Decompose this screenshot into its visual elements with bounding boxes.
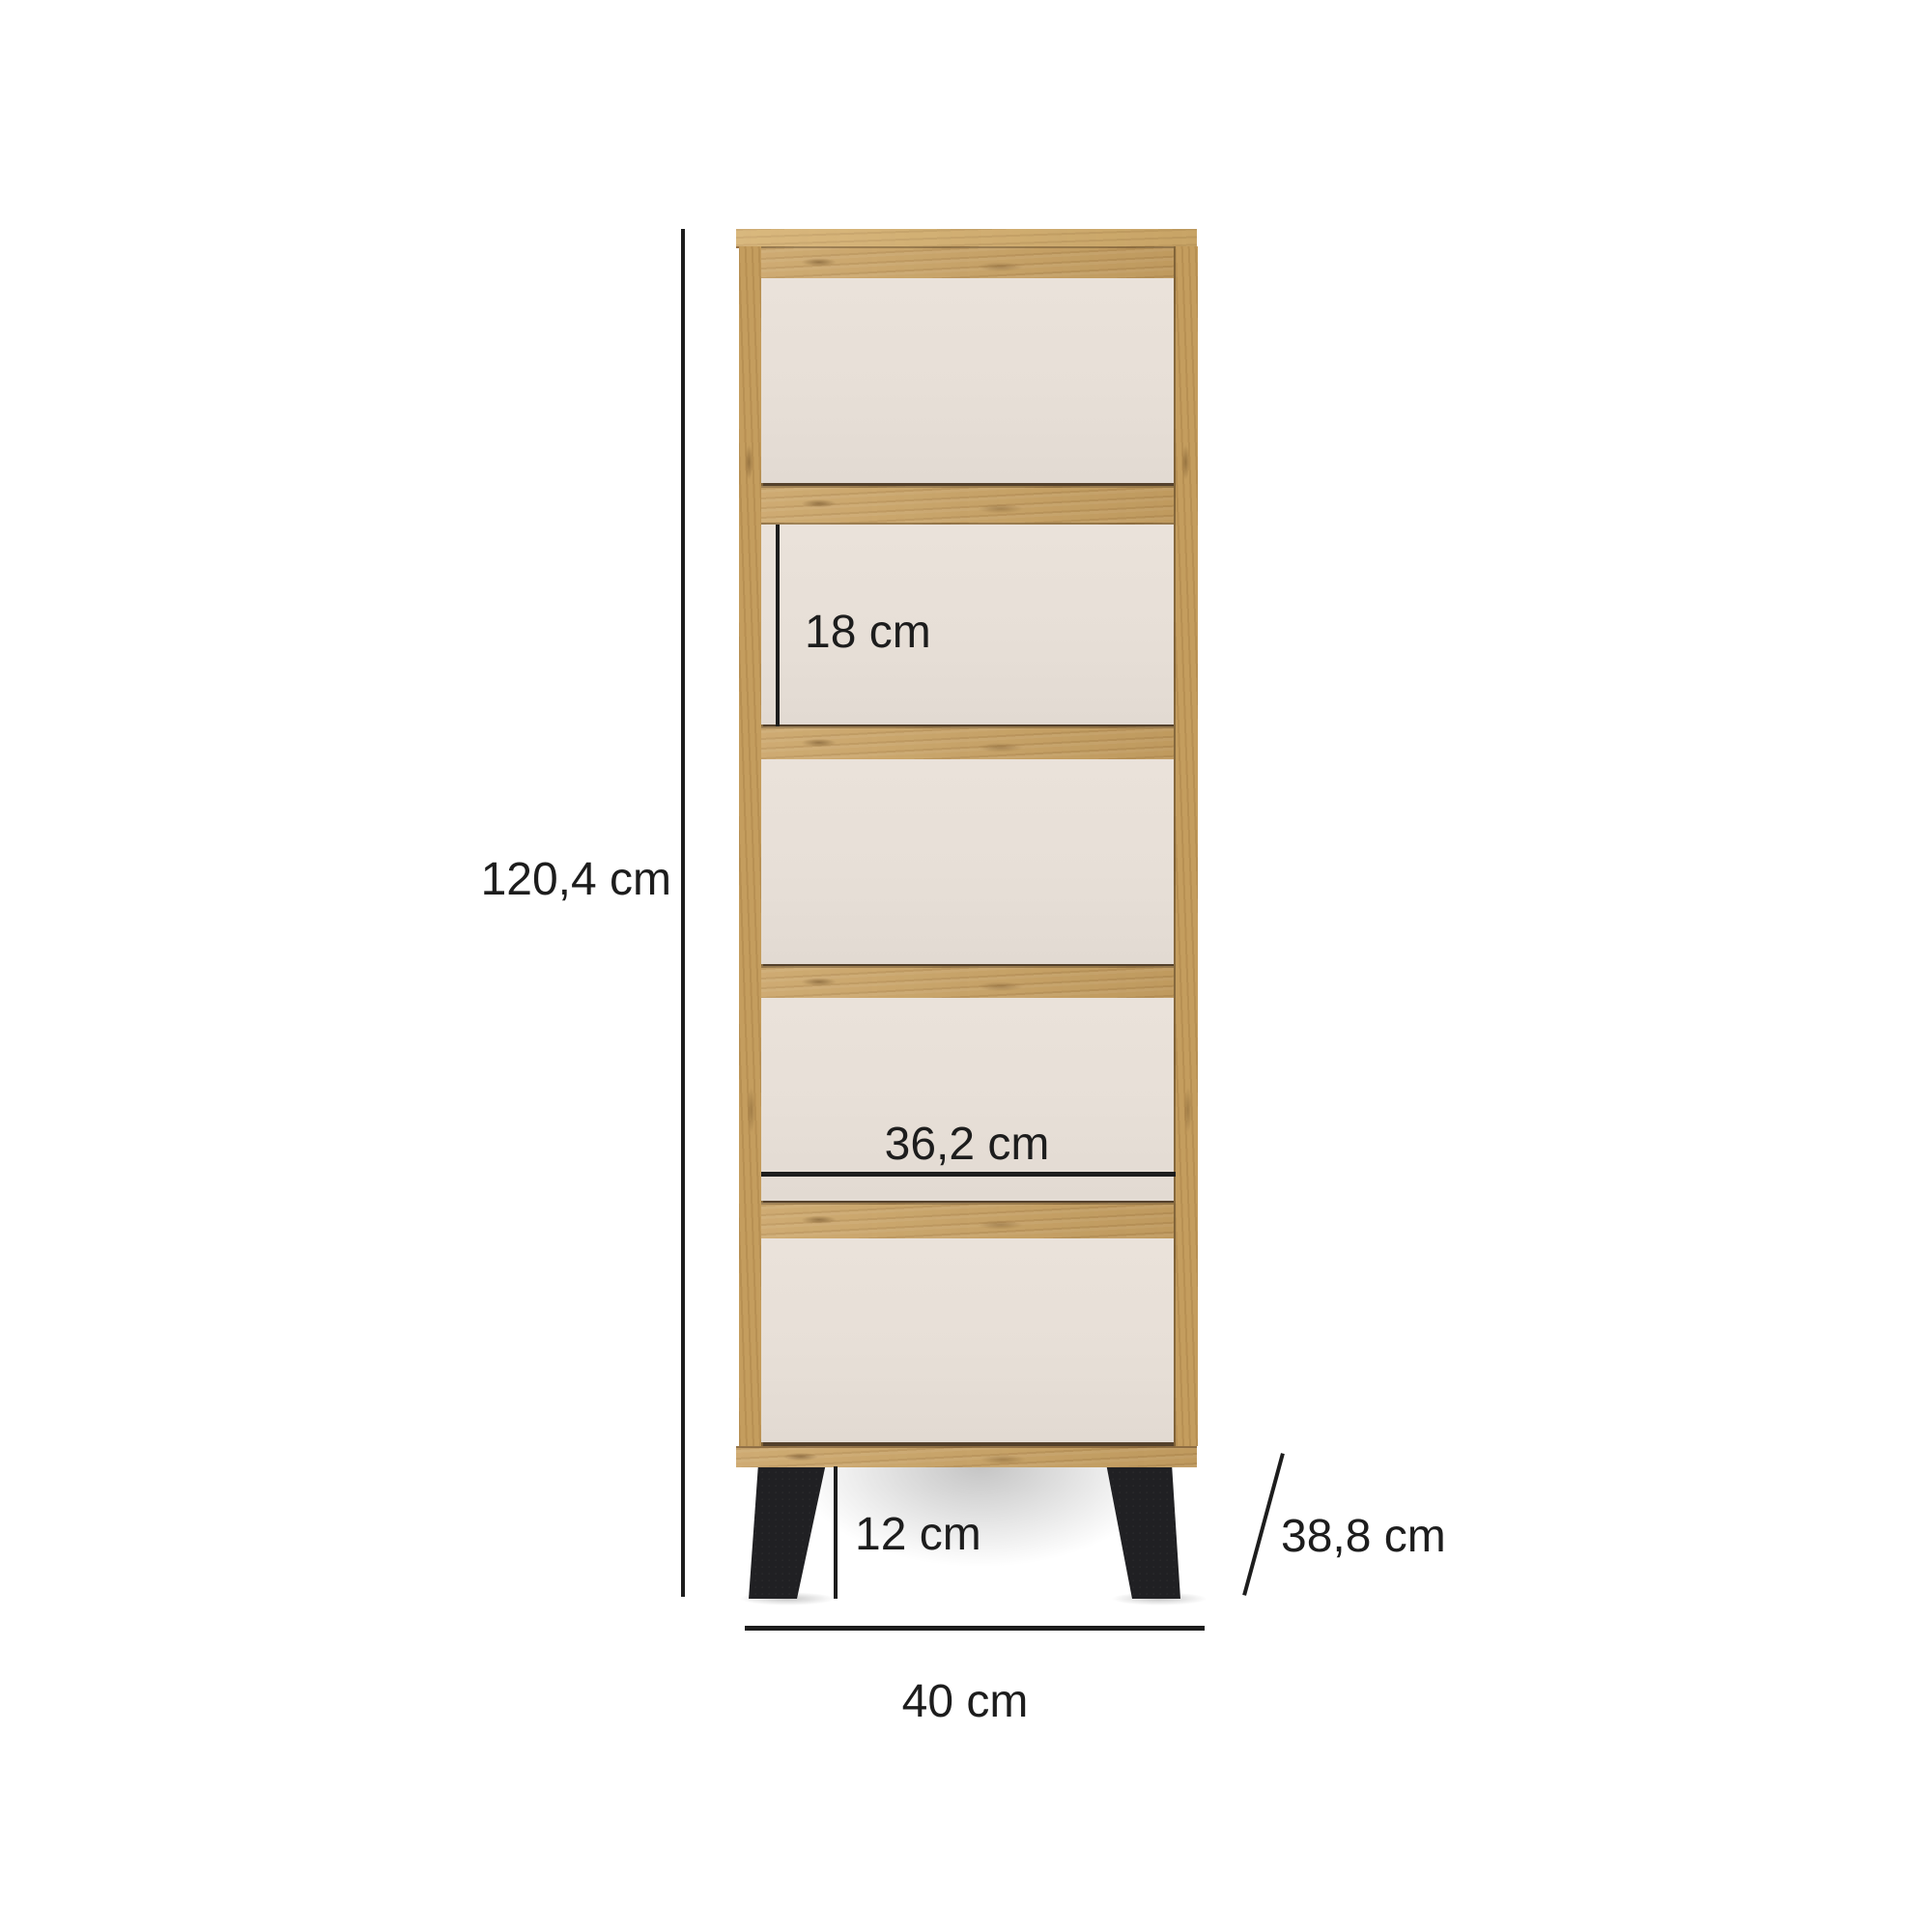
- width-dimension-label: 40 cm: [839, 1674, 1091, 1730]
- cabinet-body: [739, 246, 1196, 1446]
- cabinet-left-stile: [739, 246, 763, 1446]
- wood-rail-2: [761, 486, 1174, 525]
- height-dimension-line: [681, 229, 685, 1597]
- depth-dimension-line: [1242, 1453, 1285, 1596]
- width-dimension-line: [745, 1626, 1205, 1631]
- drawer-width-dimension-label: 36,2 cm: [841, 1117, 1093, 1173]
- drawer-front-5: [761, 1238, 1174, 1442]
- cabinet-top-board: [736, 229, 1197, 248]
- cabinet-bottom-board: [736, 1446, 1197, 1467]
- drawer-height-dimension-line: [776, 525, 780, 726]
- drawer-width-dimension-line: [761, 1172, 1176, 1177]
- cabinet-right-stile: [1174, 246, 1198, 1446]
- wood-rail-top: [761, 246, 1174, 281]
- wood-rail-4: [761, 966, 1174, 1001]
- drawer-front-1: [761, 278, 1174, 483]
- diagram-canvas: 120,4 cm 18 cm 36,2 cm 12 cm 38,8 cm 40 …: [0, 0, 1932, 1932]
- drawer-height-dimension-label: 18 cm: [805, 605, 931, 661]
- wood-rail-5: [761, 1203, 1174, 1240]
- leg-height-dimension-line: [834, 1466, 838, 1599]
- depth-dimension-label: 38,8 cm: [1281, 1509, 1446, 1565]
- wood-rail-3: [761, 726, 1174, 762]
- height-dimension-label: 120,4 cm: [430, 852, 671, 908]
- cabinet-inner-column: [761, 246, 1174, 1446]
- leg-height-dimension-label: 12 cm: [855, 1507, 981, 1563]
- drawer-front-3: [761, 759, 1174, 964]
